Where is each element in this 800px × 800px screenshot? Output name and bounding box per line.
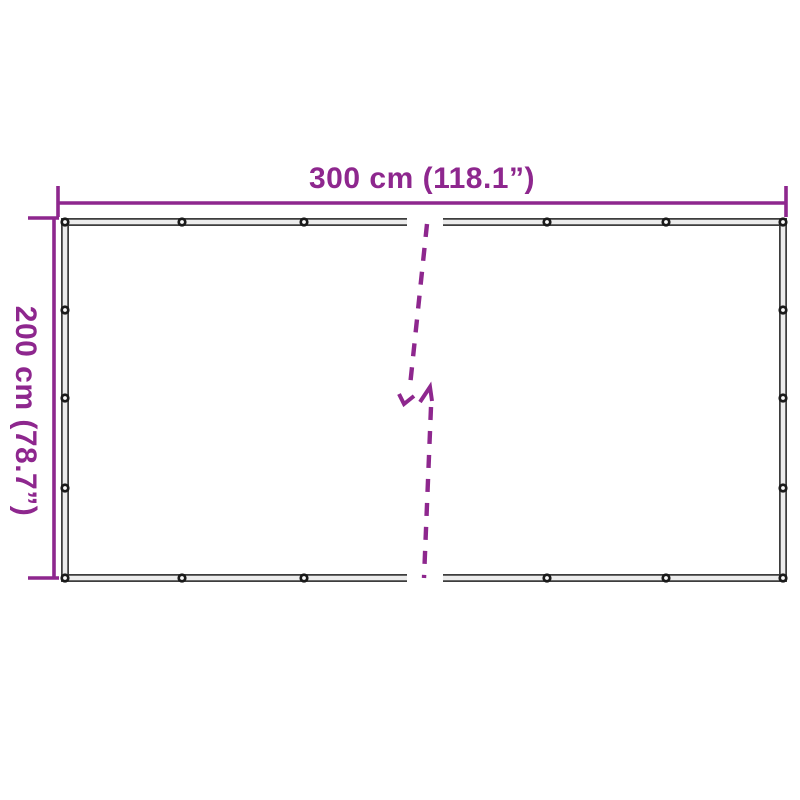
eyelet-hole — [781, 486, 785, 490]
break-chevron-left-icon — [399, 394, 414, 404]
eyelet-hole — [781, 576, 785, 580]
eyelet-hole — [63, 308, 67, 312]
eyelet-hole — [302, 576, 306, 580]
eyelet-hole — [781, 220, 785, 224]
break-line-lower — [424, 407, 431, 578]
break-line-upper — [410, 224, 427, 386]
eyelet-hole — [180, 576, 184, 580]
eyelet-hole — [664, 576, 668, 580]
panel-right-outline — [443, 222, 783, 578]
eyelet-hole — [664, 220, 668, 224]
eyelet-hole — [63, 220, 67, 224]
diagram-graphic — [0, 0, 800, 800]
break-line — [399, 224, 432, 578]
eyelet-hole — [302, 220, 306, 224]
height-dimension-label: 200 cm (78.7”) — [8, 281, 42, 541]
eyelet-hole — [63, 396, 67, 400]
product-dimension-diagram: 300 cm (118.1”) 200 cm (78.7”) — [0, 0, 800, 800]
eyelet-hole — [545, 576, 549, 580]
eyelet-hole — [63, 576, 67, 580]
width-dimension-label: 300 cm (118.1”) — [58, 162, 786, 196]
eyelet-hole — [781, 308, 785, 312]
eyelet-hole — [180, 220, 184, 224]
break-chevron-right-icon — [420, 387, 432, 402]
eyelet-hole — [63, 486, 67, 490]
eyelet-hole — [781, 396, 785, 400]
panel-left-outline — [65, 222, 407, 578]
eyelet-hole — [545, 220, 549, 224]
